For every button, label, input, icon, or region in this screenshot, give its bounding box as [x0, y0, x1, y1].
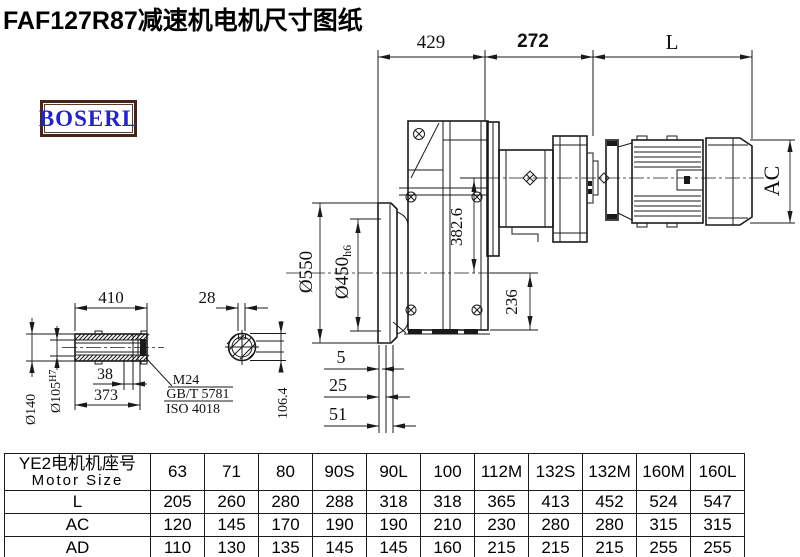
cell: 110 [151, 537, 205, 557]
cell: 315 [691, 514, 745, 537]
dimension-236: 236 [490, 273, 538, 330]
cell: 230 [475, 514, 529, 537]
bolt-standard-gb-label: GB/T 5781 [166, 387, 229, 402]
dim-L-label: L [666, 30, 679, 54]
dim-ac-label: AC [759, 166, 784, 197]
motor-size-table: YE2电机机座号 Motor Size 63 71 80 90S 90L 100… [4, 453, 745, 557]
col-header: 160M [637, 454, 691, 491]
cell: 288 [313, 491, 367, 514]
cell: 205 [151, 491, 205, 514]
col-header: 112M [475, 454, 529, 491]
dim-51-label: 51 [329, 404, 347, 424]
cell: 210 [421, 514, 475, 537]
page-title: FAF127R87减速机电机尺寸图纸 [3, 1, 363, 37]
col-header: 100 [421, 454, 475, 491]
col-header: 80 [259, 454, 313, 491]
dim-38-label: 38 [97, 366, 113, 383]
dimension-382: 382.6 [447, 178, 488, 273]
row-label: AC [5, 514, 151, 537]
cell: 260 [205, 491, 259, 514]
col-header: 132S [529, 454, 583, 491]
bolt-size-label: M24 [173, 373, 199, 388]
cell: 160 [421, 537, 475, 557]
row-label: AD [5, 537, 151, 557]
terminal-box [677, 170, 703, 190]
dim-236-label: 236 [502, 289, 521, 315]
brand-logo: BOSERL [40, 100, 137, 137]
cell: 215 [475, 537, 529, 557]
dim-410-label: 410 [98, 288, 124, 307]
dimension-ac: AC [750, 140, 795, 223]
dim-272-label: 272 [517, 31, 549, 52]
housing-bolts [406, 129, 482, 316]
cell: 547 [691, 491, 745, 514]
col-header: 160L [691, 454, 745, 491]
col-header: 90S [313, 454, 367, 491]
motor [606, 136, 752, 227]
dim-bore105-label: Ø105H7 [48, 370, 64, 413]
table-row-L: L 205 260 280 288 318 318 365 413 452 52… [5, 491, 745, 514]
dim-bore-value: Ø105 [49, 382, 64, 413]
gearbox-feet [404, 329, 490, 334]
dim-373-label: 373 [94, 387, 118, 404]
cell: 215 [529, 537, 583, 557]
cell: 318 [421, 491, 475, 514]
cell: 130 [205, 537, 259, 557]
bolt-callout: M24 GB/T 5781 ISO 4018 [146, 358, 233, 417]
cell: 255 [637, 537, 691, 557]
dim-550-label: Ø550 [296, 251, 317, 293]
col-header: 63 [151, 454, 205, 491]
dim-450-tolerance: h6 [340, 245, 354, 257]
cell: 280 [583, 514, 637, 537]
dimension-106: 106.4 [250, 321, 291, 419]
col-header: 90L [367, 454, 421, 491]
dimension-key28: 28 [199, 288, 269, 331]
dimension-top-chain: 429 272 L [378, 30, 752, 203]
cell: 315 [637, 514, 691, 537]
cell: 452 [583, 491, 637, 514]
dim-25-label: 25 [329, 375, 347, 395]
dim-450-label: Ø450h6 [332, 245, 354, 299]
motor-fins [634, 147, 701, 216]
dimension-offsets: 5 25 51 [324, 345, 416, 433]
cell: 170 [259, 514, 313, 537]
shaft-detail: 410 Ø140 Ø105H7 38 [24, 288, 233, 425]
table-header-cn: YE2电机机座号 [5, 455, 150, 473]
table-row-AD: AD 110 130 135 145 145 160 215 215 215 2… [5, 537, 745, 557]
cell: 145 [313, 537, 367, 557]
dim-450-value: Ø450 [332, 257, 353, 299]
table-header-row: YE2电机机座号 Motor Size 63 71 80 90S 90L 100… [5, 454, 745, 491]
cell: 190 [367, 514, 421, 537]
dimension-450: Ø450h6 [332, 219, 381, 331]
dimension-bore105: Ø105H7 [48, 326, 75, 413]
cell: 135 [259, 537, 313, 557]
gearbox-housing [399, 121, 490, 334]
cell: 145 [367, 537, 421, 557]
cell: 255 [691, 537, 745, 557]
dimension-38: 38 [93, 361, 147, 390]
dim-28-label: 28 [199, 288, 216, 307]
dim-429-label: 429 [417, 32, 446, 53]
cell: 318 [367, 491, 421, 514]
cell: 215 [583, 537, 637, 557]
col-header: 71 [205, 454, 259, 491]
cell: 280 [259, 491, 313, 514]
cell: 365 [475, 491, 529, 514]
cell: 524 [637, 491, 691, 514]
bolt-standard-iso-label: ISO 4018 [166, 402, 220, 417]
brand-logo-text: BOSERL [39, 107, 138, 130]
cell: 190 [313, 514, 367, 537]
table-row-AC: AC 120 145 170 190 190 210 230 280 280 3… [5, 514, 745, 537]
dim-106-label: 106.4 [276, 388, 291, 420]
fan-cover [706, 138, 752, 225]
dim-5-label: 5 [337, 347, 346, 367]
cell: 120 [151, 514, 205, 537]
drawing-sheet: FAF127R87减速机电机尺寸图纸 BOSERL 429 272 L [0, 0, 800, 557]
helical-gear-unit [487, 122, 609, 256]
col-header: 132M [583, 454, 637, 491]
dim-bore-tolerance: H7 [48, 370, 59, 382]
table-header-motor-size: YE2电机机座号 Motor Size [5, 454, 151, 491]
dim-382-label: 382.6 [447, 208, 466, 246]
cell: 280 [529, 514, 583, 537]
row-label: L [5, 491, 151, 514]
dimension-410: 410 [75, 288, 147, 331]
table-header-en: Motor Size [5, 473, 150, 489]
dim-od140-label: Ø140 [24, 394, 39, 425]
cell: 145 [205, 514, 259, 537]
cell: 413 [529, 491, 583, 514]
